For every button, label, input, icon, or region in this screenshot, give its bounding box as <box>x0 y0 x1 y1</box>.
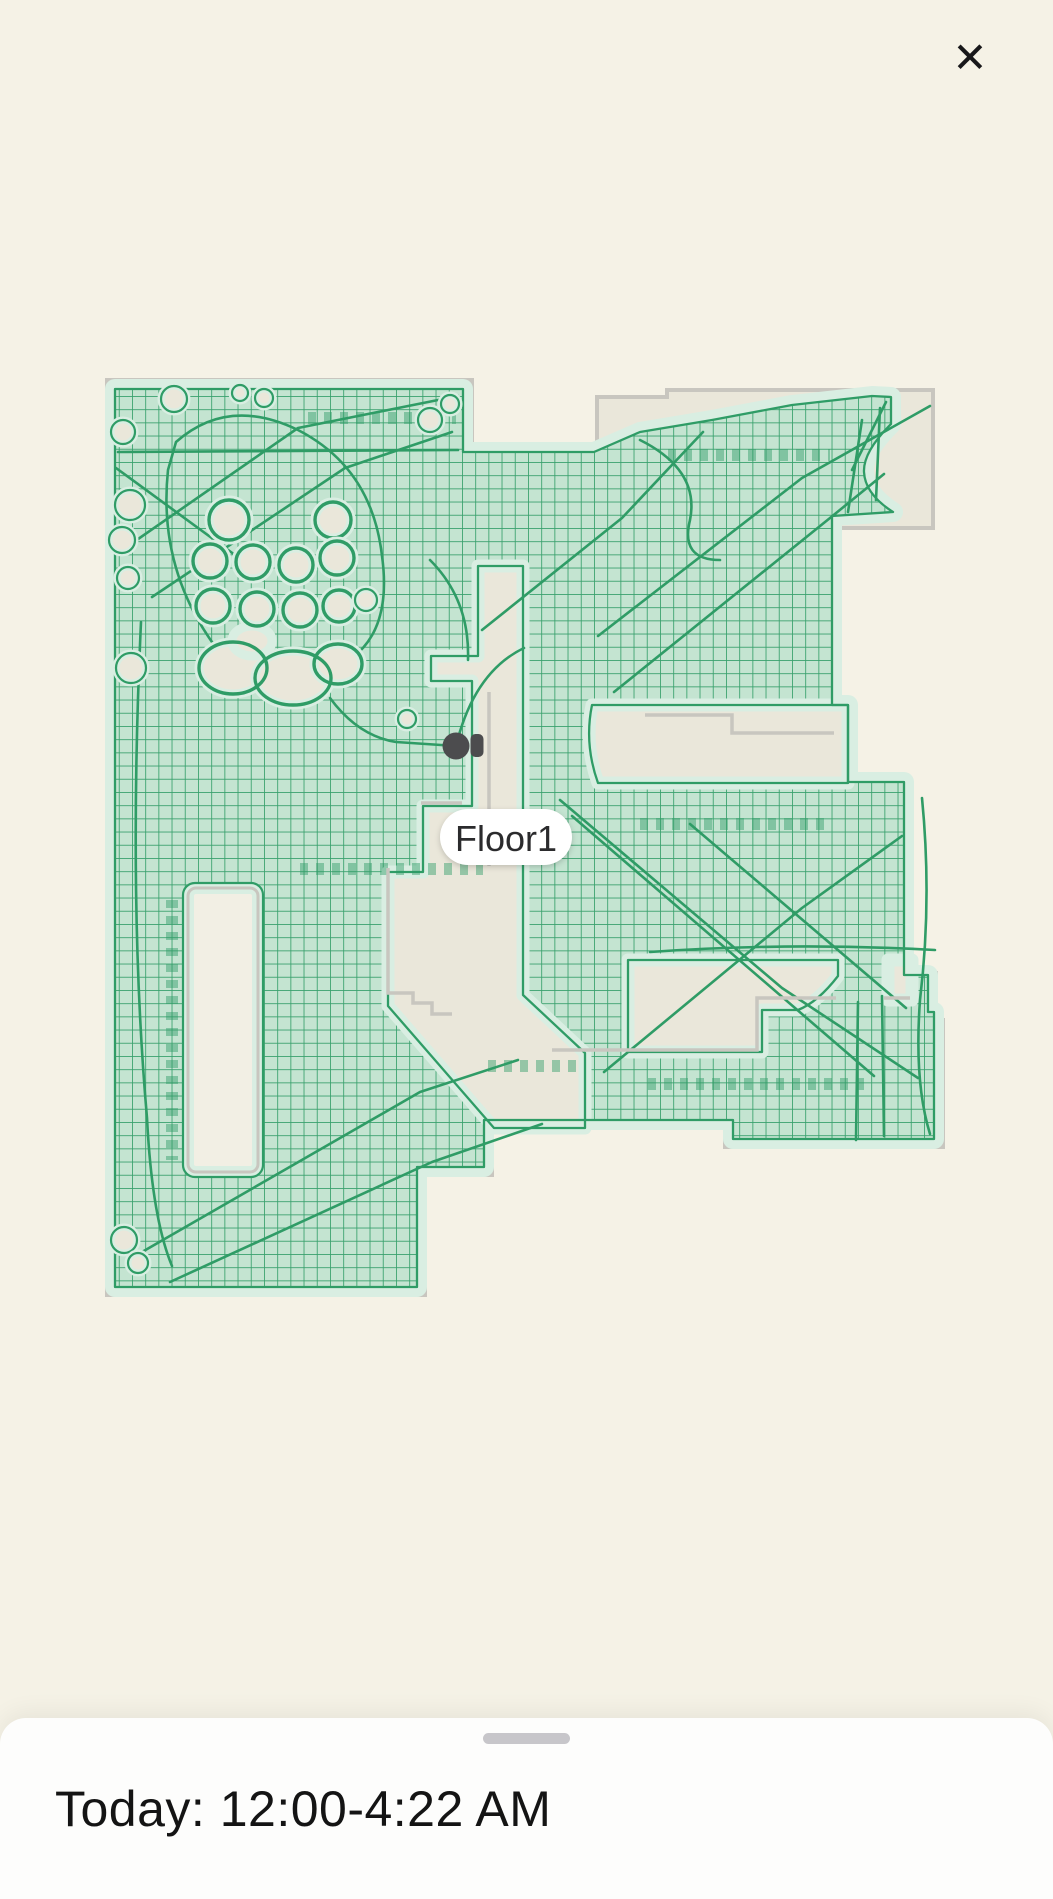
session-time-title: Today: 12:00-4:22 AM <box>55 1780 551 1838</box>
map-detail-screen: Floor1 ✕ Today: 12:00-4:22 AM <box>0 0 1053 1899</box>
floor-label-pill[interactable]: Floor1 <box>440 809 572 865</box>
dock-icon <box>471 734 484 757</box>
drag-handle[interactable] <box>483 1733 570 1744</box>
cleaning-map[interactable]: Floor1 <box>0 0 1053 1899</box>
close-icon: ✕ <box>952 33 987 82</box>
furniture-obstacle <box>183 883 263 1177</box>
floor-label: Floor1 <box>455 818 557 859</box>
close-button[interactable]: ✕ <box>938 26 1002 90</box>
uncleaned-right-edge-pocket <box>888 960 912 1000</box>
robot-marker <box>443 733 484 760</box>
robot-icon <box>443 733 470 760</box>
bottom-sheet: Today: 12:00-4:22 AM <box>0 1718 1053 1899</box>
